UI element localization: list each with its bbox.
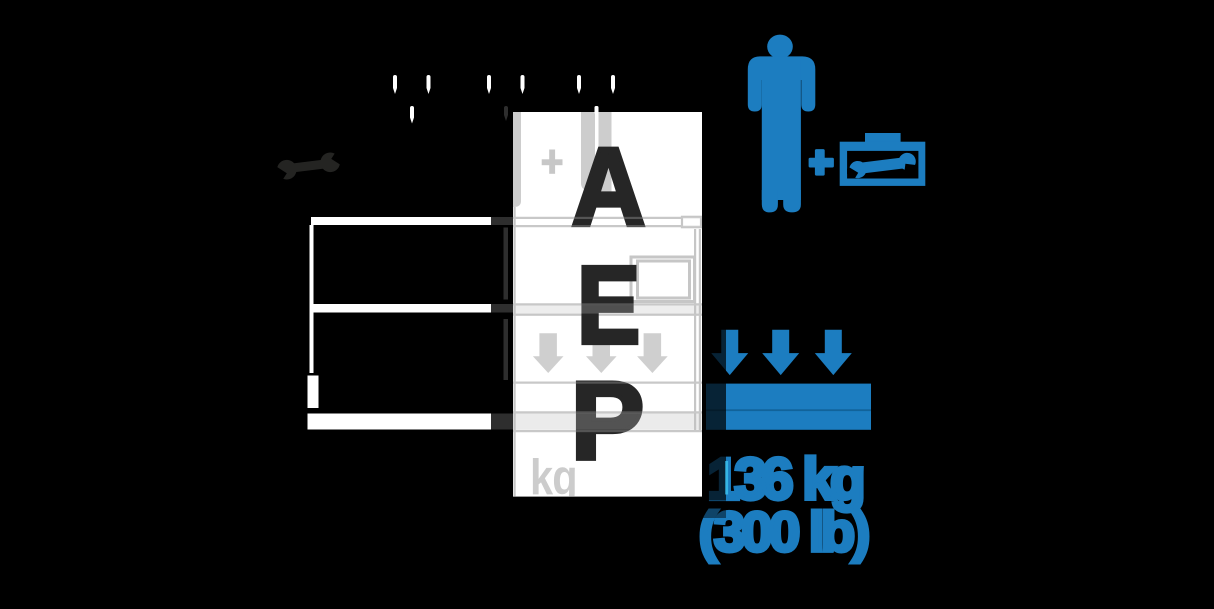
svg-text:A: A [571,124,645,248]
